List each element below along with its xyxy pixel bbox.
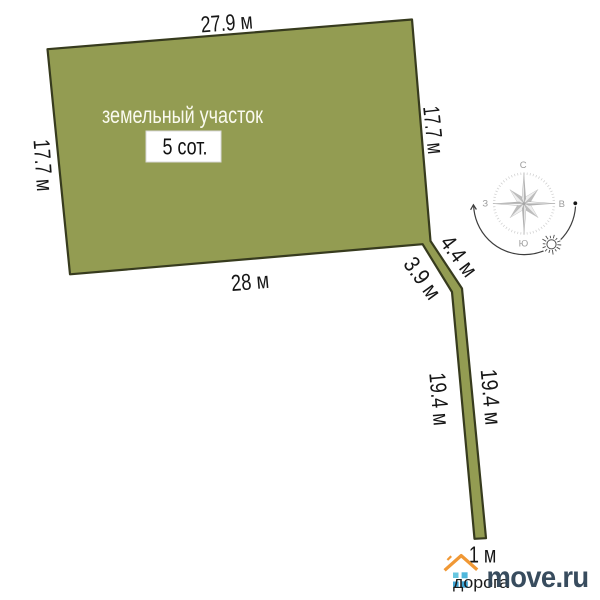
svg-text:19.4 м: 19.4 м bbox=[476, 368, 507, 426]
svg-text:17.7 м: 17.7 м bbox=[418, 105, 449, 155]
svg-text:З: З bbox=[482, 199, 488, 210]
svg-text:27.9 м: 27.9 м bbox=[200, 7, 254, 37]
svg-text:земельный участок: земельный участок bbox=[102, 102, 264, 128]
svg-text:С: С bbox=[520, 160, 527, 171]
svg-text:28 м: 28 м bbox=[230, 267, 270, 296]
svg-text:В: В bbox=[559, 199, 565, 210]
svg-text:move.ru: move.ru bbox=[487, 561, 589, 594]
svg-text:5 сот.: 5 сот. bbox=[163, 134, 208, 160]
svg-text:17.7 м: 17.7 м bbox=[29, 138, 59, 192]
svg-text:19.4 м: 19.4 м bbox=[424, 371, 455, 426]
svg-text:Ю: Ю bbox=[519, 238, 529, 249]
